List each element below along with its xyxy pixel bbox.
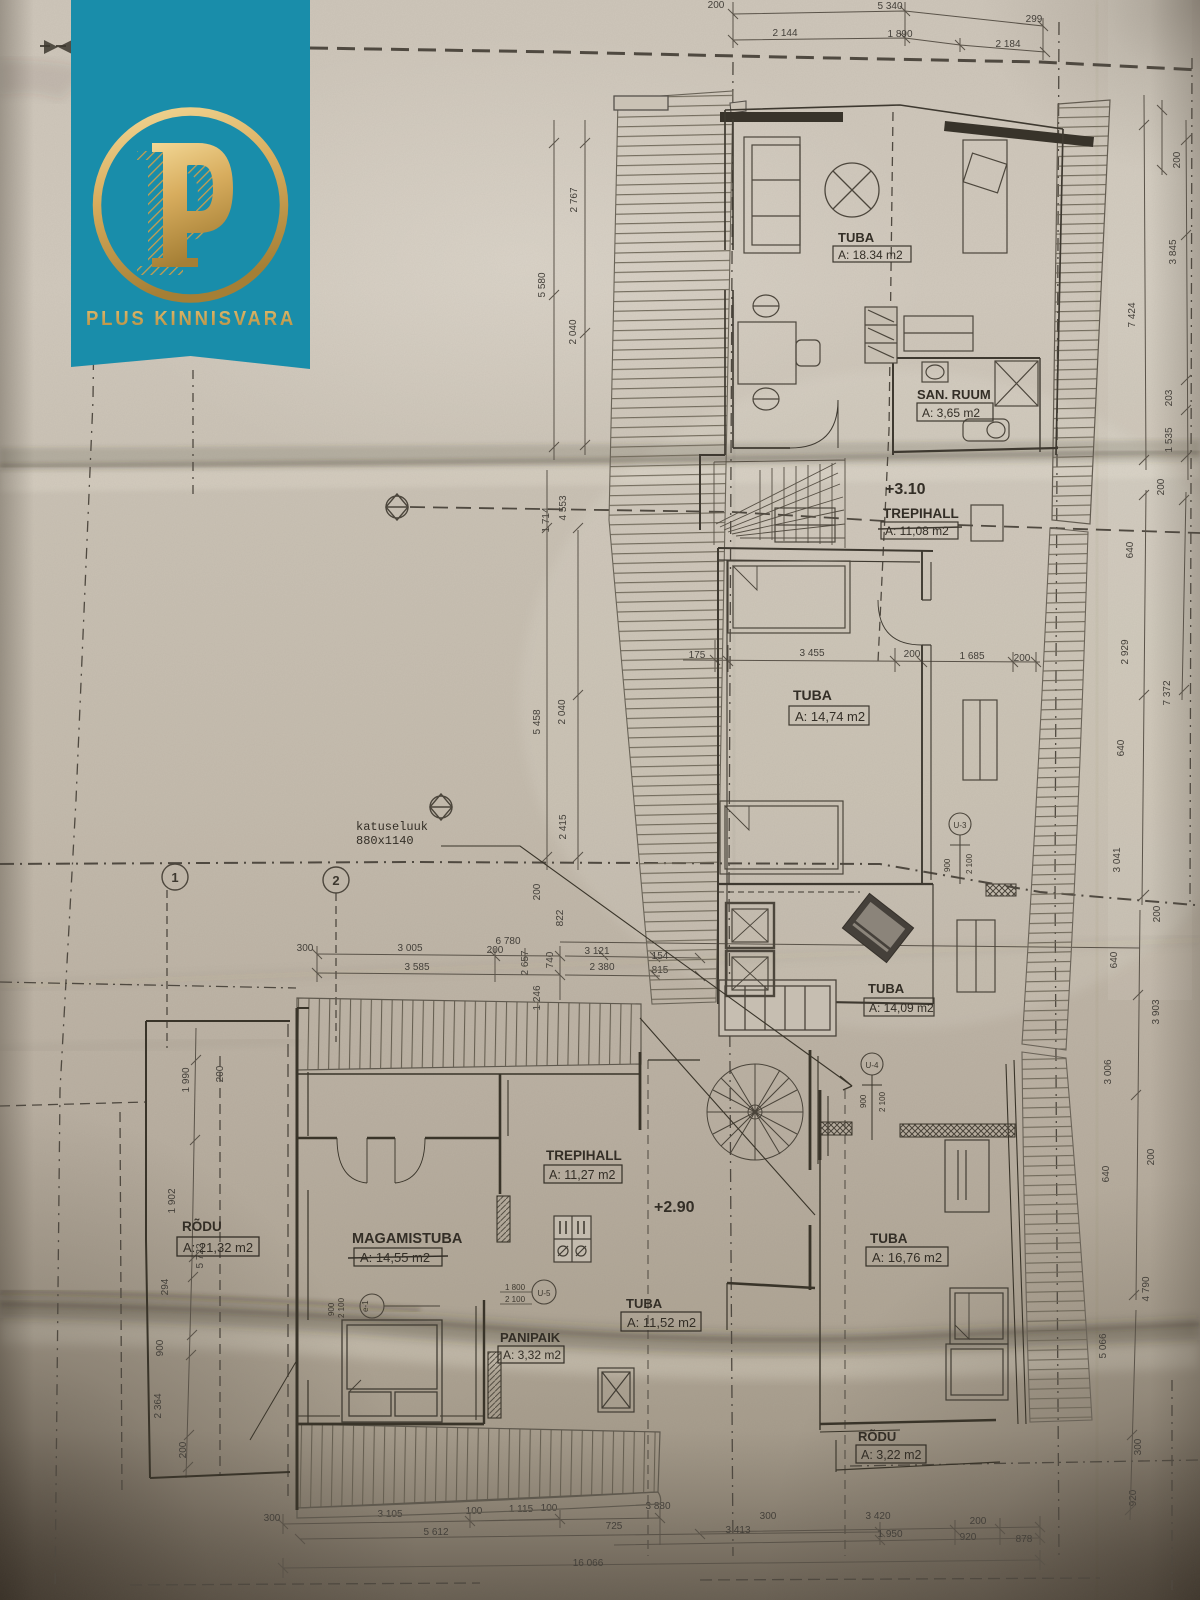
svg-text:900: 900 <box>327 1302 336 1316</box>
svg-text:200: 200 <box>1014 653 1031 664</box>
svg-text:3 585: 3 585 <box>404 962 429 973</box>
svg-text:880x1140: 880x1140 <box>356 834 414 848</box>
svg-text:1 990: 1 990 <box>181 1067 192 1092</box>
svg-text:300: 300 <box>1133 1438 1144 1455</box>
svg-text:TUBA: TUBA <box>793 687 832 703</box>
svg-text:A: 11,52 m2: A: 11,52 m2 <box>627 1315 696 1330</box>
svg-text:A: 14,09 m2: A: 14,09 m2 <box>869 1001 934 1015</box>
svg-text:A: 3,32 m2: A: 3,32 m2 <box>503 1348 561 1362</box>
svg-text:5 340: 5 340 <box>877 1 902 12</box>
svg-text:300: 300 <box>264 1513 281 1524</box>
svg-text:2 100: 2 100 <box>878 1091 887 1112</box>
svg-text:200: 200 <box>532 883 543 900</box>
svg-text:2 040: 2 040 <box>557 699 568 724</box>
svg-text:+2.90: +2.90 <box>654 1199 695 1216</box>
svg-text:294: 294 <box>160 1278 171 1295</box>
svg-text:U-4: U-4 <box>866 1061 879 1070</box>
svg-text:3 006: 3 006 <box>1103 1059 1114 1084</box>
svg-text:RÕDU: RÕDU <box>858 1429 896 1444</box>
svg-text:5 458: 5 458 <box>532 709 543 734</box>
svg-text:2 100: 2 100 <box>505 1295 526 1304</box>
svg-text:TUBA: TUBA <box>868 981 905 996</box>
svg-text:A: 11,27 m2: A: 11,27 m2 <box>549 1168 616 1182</box>
svg-text:299: 299 <box>1026 14 1043 25</box>
svg-text:200: 200 <box>487 945 504 956</box>
svg-text:3 121: 3 121 <box>584 946 609 957</box>
svg-text:920: 920 <box>960 1532 977 1543</box>
svg-text:822: 822 <box>555 909 566 926</box>
svg-text:4 553: 4 553 <box>558 495 569 520</box>
svg-text:203: 203 <box>1164 389 1175 406</box>
svg-text:A: 11,08 m2: A: 11,08 m2 <box>885 524 949 538</box>
svg-text:TUBA: TUBA <box>870 1231 908 1246</box>
svg-text:1 890: 1 890 <box>887 29 912 40</box>
svg-text:100: 100 <box>466 1506 483 1517</box>
svg-text:300: 300 <box>297 943 314 954</box>
svg-text:1 115: 1 115 <box>509 1504 534 1515</box>
svg-text:2 184: 2 184 <box>995 39 1020 50</box>
svg-text:TUBA: TUBA <box>838 230 875 245</box>
svg-text:200: 200 <box>1152 905 1163 922</box>
svg-text:1 535: 1 535 <box>1164 427 1175 452</box>
svg-text:878: 878 <box>1016 1534 1033 1545</box>
svg-text:900: 900 <box>859 1094 868 1108</box>
svg-text:A: 14,74 m2: A: 14,74 m2 <box>795 709 865 724</box>
svg-text:100: 100 <box>541 1503 558 1514</box>
svg-text:2 100: 2 100 <box>965 853 974 874</box>
svg-text:2 144: 2 144 <box>772 28 797 39</box>
svg-text:640: 640 <box>1116 739 1127 756</box>
svg-text:3 420: 3 420 <box>865 1511 890 1522</box>
svg-text:e-1: e-1 <box>361 1300 370 1312</box>
svg-text:3 005: 3 005 <box>397 943 422 954</box>
svg-text:5 066: 5 066 <box>1098 1333 1109 1358</box>
svg-text:U-5: U-5 <box>538 1289 551 1298</box>
svg-text:1 685: 1 685 <box>959 651 984 662</box>
svg-text:3 041: 3 041 <box>1112 847 1123 872</box>
svg-text:1: 1 <box>171 870 178 885</box>
svg-text:640: 640 <box>1101 1165 1112 1182</box>
svg-text:SAN. RUUM: SAN. RUUM <box>917 387 991 402</box>
svg-text:A: 3,65 m2: A: 3,65 m2 <box>922 406 980 420</box>
svg-text:1 950: 1 950 <box>877 1529 902 1540</box>
svg-text:5 612: 5 612 <box>423 1527 448 1538</box>
svg-text:A: 3,22 m2: A: 3,22 m2 <box>861 1448 921 1462</box>
svg-text:2 929: 2 929 <box>1120 639 1131 664</box>
svg-text:2 415: 2 415 <box>558 814 569 839</box>
svg-text:katuseluuk: katuseluuk <box>356 820 428 834</box>
svg-text:A: 21,32 m2: A: 21,32 m2 <box>183 1240 253 1255</box>
svg-text:A: 16,76 m2: A: 16,76 m2 <box>872 1250 942 1265</box>
svg-text:200: 200 <box>1156 478 1167 495</box>
svg-text:PANIPAIK: PANIPAIK <box>500 1330 561 1345</box>
svg-text:2: 2 <box>332 873 339 888</box>
svg-text:MAGAMISTUBA: MAGAMISTUBA <box>352 1231 463 1247</box>
svg-text:7 372: 7 372 <box>1162 680 1173 705</box>
svg-text:900: 900 <box>155 1339 166 1356</box>
svg-text:725: 725 <box>606 1521 623 1532</box>
svg-text:3 845: 3 845 <box>1168 239 1179 264</box>
svg-text:2 380: 2 380 <box>589 962 614 973</box>
svg-text:3 413: 3 413 <box>725 1525 750 1536</box>
svg-text:U-3: U-3 <box>954 821 967 830</box>
svg-text:640: 640 <box>1109 951 1120 968</box>
svg-text:200: 200 <box>215 1065 226 1082</box>
svg-text:+3.10: +3.10 <box>885 481 926 498</box>
svg-text:PLUS KINNISVARA: PLUS KINNISVARA <box>86 308 296 330</box>
svg-text:4 790: 4 790 <box>1141 1276 1152 1301</box>
svg-text:1 902: 1 902 <box>167 1188 178 1213</box>
svg-text:900: 900 <box>943 858 952 872</box>
svg-text:5 580: 5 580 <box>537 272 548 297</box>
svg-text:3 903: 3 903 <box>1151 999 1162 1024</box>
svg-text:3 105: 3 105 <box>377 1509 402 1520</box>
svg-text:3 455: 3 455 <box>799 648 824 659</box>
svg-text:TUBA: TUBA <box>626 1296 663 1311</box>
svg-text:16 066: 16 066 <box>573 1558 604 1569</box>
svg-text:200: 200 <box>708 0 725 11</box>
svg-text:2 100: 2 100 <box>337 1297 346 1318</box>
svg-text:2 767: 2 767 <box>569 187 580 212</box>
svg-text:A: 18.34 m2: A: 18.34 m2 <box>838 248 903 262</box>
svg-text:3 880: 3 880 <box>645 1501 670 1512</box>
svg-text:300: 300 <box>760 1511 777 1522</box>
svg-text:200: 200 <box>1146 1148 1157 1165</box>
svg-text:920: 920 <box>1128 1489 1139 1506</box>
svg-text:200: 200 <box>1172 151 1183 168</box>
svg-text:1 800: 1 800 <box>505 1283 526 1292</box>
svg-text:7 424: 7 424 <box>1127 302 1138 327</box>
svg-text:740: 740 <box>545 951 556 968</box>
svg-text:TREPIHALL: TREPIHALL <box>883 506 959 521</box>
svg-text:200: 200 <box>904 649 921 660</box>
svg-text:2 364: 2 364 <box>153 1393 164 1418</box>
svg-text:640: 640 <box>1125 541 1136 558</box>
svg-text:TREPIHALL: TREPIHALL <box>546 1148 622 1163</box>
svg-text:2 040: 2 040 <box>568 319 579 344</box>
svg-text:200: 200 <box>970 1516 987 1527</box>
svg-text:RÕDU: RÕDU <box>182 1219 222 1234</box>
